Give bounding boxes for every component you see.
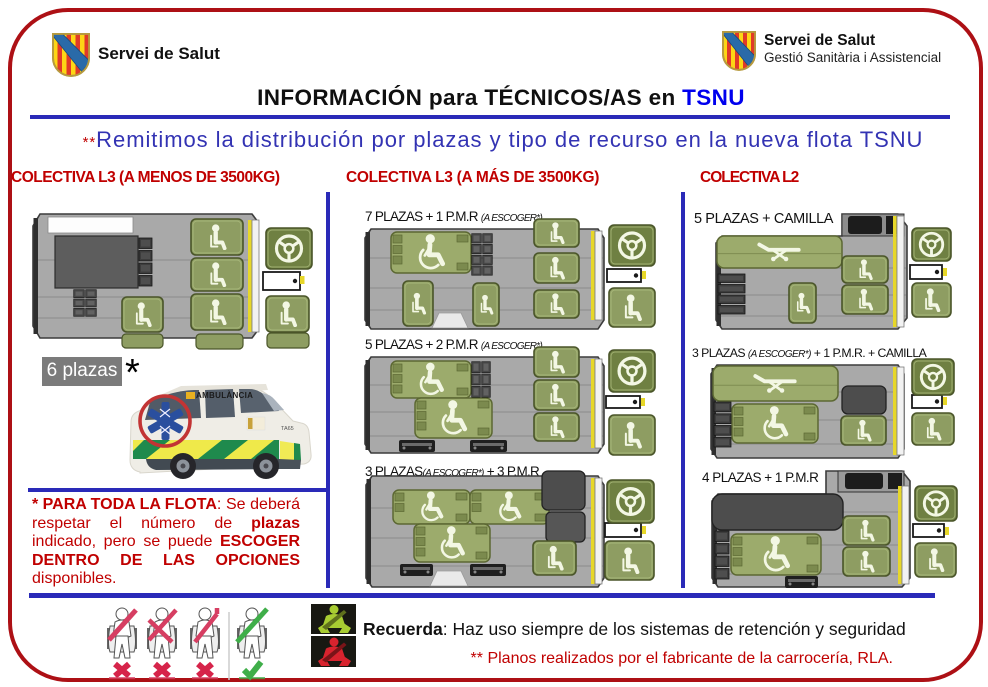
svg-text:TA65: TA65 (281, 426, 294, 432)
svg-text:AMBULÀNCIA: AMBULÀNCIA (196, 391, 253, 400)
